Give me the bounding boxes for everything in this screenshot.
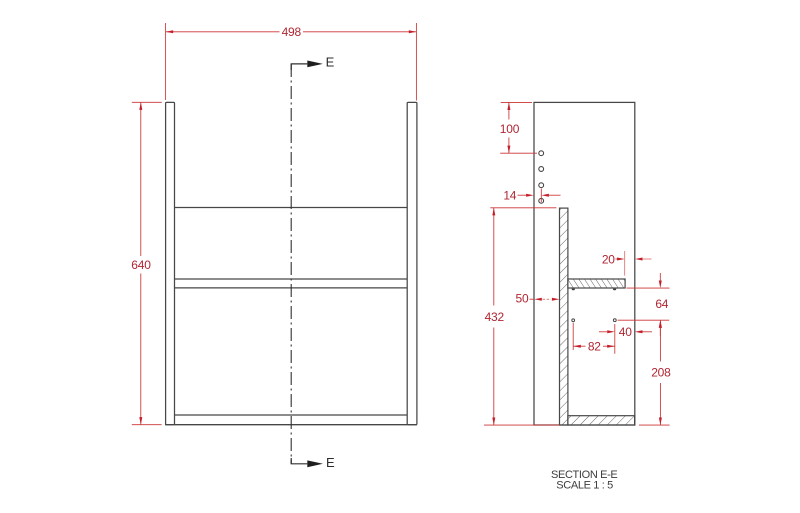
svg-text:64: 64 — [655, 297, 668, 311]
svg-text:SCALE 1 : 5: SCALE 1 : 5 — [556, 480, 613, 492]
svg-text:100: 100 — [500, 122, 520, 136]
svg-text:82: 82 — [588, 340, 601, 354]
svg-text:640: 640 — [131, 258, 151, 272]
svg-text:498: 498 — [282, 25, 302, 39]
svg-text:208: 208 — [651, 366, 671, 380]
svg-text:E: E — [326, 455, 335, 470]
svg-text:432: 432 — [485, 310, 505, 324]
svg-text:40: 40 — [619, 325, 632, 339]
svg-text:E: E — [326, 54, 335, 69]
svg-text:14: 14 — [503, 189, 516, 203]
svg-text:50: 50 — [516, 292, 529, 306]
svg-text:20: 20 — [602, 252, 615, 266]
